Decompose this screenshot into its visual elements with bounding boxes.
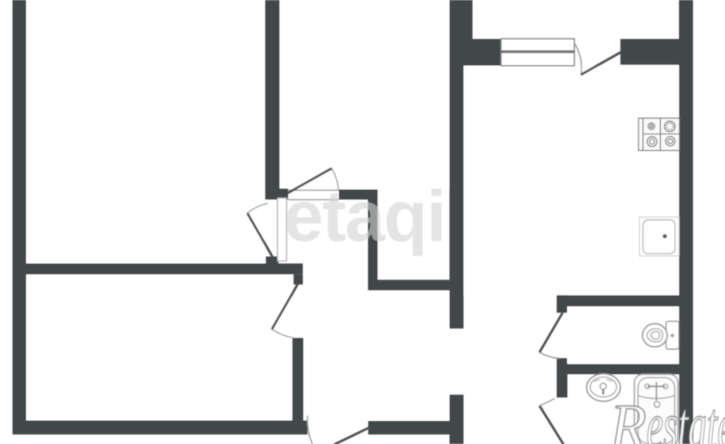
svg-text:etaqi: etaqi: [284, 177, 446, 257]
svg-text:R: R: [609, 393, 647, 444]
svg-text:estate: estate: [647, 389, 725, 444]
